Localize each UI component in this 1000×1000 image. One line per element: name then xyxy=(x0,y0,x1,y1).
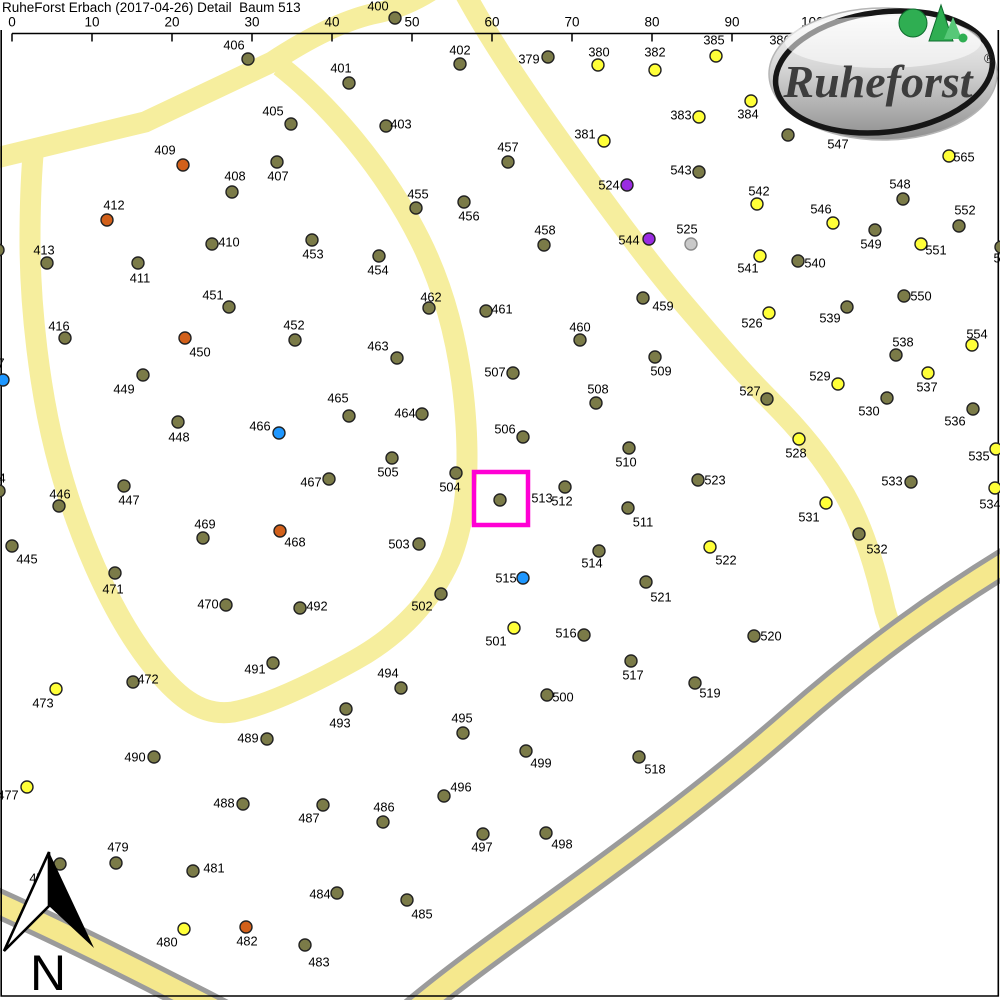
tree-413-label: 413 xyxy=(33,243,54,258)
tree-480-dot[interactable] xyxy=(178,923,190,935)
tree-407-label: 407 xyxy=(267,169,288,184)
tree-457-label: 457 xyxy=(497,140,518,155)
tree-401-dot[interactable] xyxy=(343,77,355,89)
tree-516-dot[interactable] xyxy=(578,629,590,641)
tree-454-dot[interactable] xyxy=(373,250,385,262)
tree-488-label: 488 xyxy=(213,796,234,811)
tree-526-dot[interactable] xyxy=(763,307,775,319)
tree-7-label: 7 xyxy=(0,356,5,371)
tree-467-label: 467 xyxy=(300,475,321,490)
tree-484-label: 484 xyxy=(309,887,330,902)
tree-525-dot[interactable] xyxy=(685,238,697,250)
tree-403-label: 403 xyxy=(390,117,411,132)
scale-label-60: 60 xyxy=(484,15,499,30)
tree-383-dot[interactable] xyxy=(693,111,705,123)
tree-380-dot[interactable] xyxy=(592,59,604,71)
tree-534-dot[interactable] xyxy=(989,482,1000,494)
tree-508-label: 508 xyxy=(587,382,608,397)
tree-464-label: 464 xyxy=(394,406,415,421)
tree-460-label: 460 xyxy=(569,320,590,335)
tree-405-label: 405 xyxy=(262,104,283,119)
tree-512-label: 512 xyxy=(551,494,572,509)
tree-488-dot[interactable] xyxy=(237,798,249,810)
tree-5-label: 5 xyxy=(993,251,1000,266)
tree-467-dot[interactable] xyxy=(323,473,335,485)
tree-481-label: 481 xyxy=(203,861,224,876)
tree-543-label: 543 xyxy=(670,163,691,178)
tree-530-label: 530 xyxy=(858,404,879,419)
tree-382-label: 382 xyxy=(644,45,665,60)
tree-465-label: 465 xyxy=(327,391,348,406)
tree-448-label: 448 xyxy=(168,430,189,445)
tree-382-dot[interactable] xyxy=(649,64,661,76)
tree-456-dot[interactable] xyxy=(458,196,470,208)
tree-531-dot[interactable] xyxy=(820,497,832,509)
north-letter: N xyxy=(30,945,66,1000)
tree-416-label: 416 xyxy=(48,319,69,334)
tree-447-dot[interactable] xyxy=(118,480,130,492)
tree-498-dot[interactable] xyxy=(540,827,552,839)
tree-565-label: 565 xyxy=(953,150,974,165)
tree-485-label: 485 xyxy=(411,907,432,922)
tree-463-dot[interactable] xyxy=(391,352,403,364)
logo-wordmark: Ruheforst xyxy=(782,56,973,107)
tree-477-dot[interactable] xyxy=(21,781,33,793)
tree-446-dot[interactable] xyxy=(53,500,65,512)
tree-487-label: 487 xyxy=(298,811,319,826)
tree-537-dot[interactable] xyxy=(922,367,934,379)
tree-511-label: 511 xyxy=(633,515,653,530)
tree-406-label: 406 xyxy=(223,38,244,53)
tree-459-dot[interactable] xyxy=(637,292,649,304)
scale-label-40: 40 xyxy=(324,15,339,30)
tree-541-label: 541 xyxy=(737,261,758,276)
tree-470-label: 470 xyxy=(197,597,218,612)
tree-500-dot[interactable] xyxy=(541,689,553,701)
tree-516-label: 516 xyxy=(555,626,576,641)
tree-409-label: 409 xyxy=(154,143,175,158)
logo-tree-round-icon xyxy=(899,9,927,37)
tree-510-label: 510 xyxy=(615,455,636,470)
tree-471-dot[interactable] xyxy=(109,567,121,579)
tree-461-label: 461 xyxy=(491,302,512,317)
tree-408-label: 408 xyxy=(224,169,245,184)
tree-483-dot[interactable] xyxy=(299,939,311,951)
tree-384-dot[interactable] xyxy=(745,95,757,107)
tree-512-dot[interactable] xyxy=(559,481,571,493)
tree-472-label: 472 xyxy=(137,672,158,687)
tree-4-label: 4 xyxy=(0,471,6,486)
tree-380-label: 380 xyxy=(588,45,609,60)
map-title: RuheForst Erbach (2017-04-26) Detail Bau… xyxy=(2,0,301,15)
logo-registered-mark: ® xyxy=(984,50,995,66)
tree-379-dot[interactable] xyxy=(542,51,554,63)
tree-511-dot[interactable] xyxy=(622,502,634,514)
tree-509-dot[interactable] xyxy=(649,351,661,363)
tree-538-dot[interactable] xyxy=(890,349,902,361)
scale-label-10: 10 xyxy=(84,15,99,30)
tree-497-label: 497 xyxy=(471,840,492,855)
tree-494-dot[interactable] xyxy=(395,682,407,694)
tree-508-dot[interactable] xyxy=(590,397,602,409)
tree-450-label: 450 xyxy=(189,345,210,360)
tree-385-label: 385 xyxy=(703,33,724,48)
tree-400-label: 400 xyxy=(367,0,388,14)
tree-517-label: 517 xyxy=(622,668,643,683)
tree-550-dot[interactable] xyxy=(898,290,910,302)
tree-457-dot[interactable] xyxy=(502,156,514,168)
tree-460-dot[interactable] xyxy=(574,334,586,346)
tree-520-label: 520 xyxy=(760,629,781,644)
tree-536-label: 536 xyxy=(944,414,965,429)
tree-501-label: 501 xyxy=(485,634,506,649)
tree-535-label: 535 xyxy=(968,449,989,464)
tree-401-label: 401 xyxy=(330,61,351,76)
tree-445-label: 445 xyxy=(16,552,37,567)
tree-491-dot[interactable] xyxy=(267,657,279,669)
tree-535-dot[interactable] xyxy=(990,443,1000,455)
tree-413-dot[interactable] xyxy=(41,257,53,269)
tree-518-label: 518 xyxy=(644,762,665,777)
scale-label-90: 90 xyxy=(724,15,739,30)
tree-507-dot[interactable] xyxy=(507,367,519,379)
tree-490-dot[interactable] xyxy=(148,751,160,763)
tree-515-dot[interactable] xyxy=(517,572,529,584)
tree-483-label: 483 xyxy=(308,955,329,970)
tree-502-label: 502 xyxy=(411,599,432,614)
tree-524-label: 524 xyxy=(598,178,619,193)
tree-466-label: 466 xyxy=(249,419,270,434)
tree-507-label: 507 xyxy=(484,365,505,380)
tree-552-dot[interactable] xyxy=(953,220,965,232)
tree-551-label: 551 xyxy=(925,243,946,258)
tree-521-label: 521 xyxy=(650,590,671,605)
tree-459-label: 459 xyxy=(652,299,673,314)
tree-450-dot[interactable] xyxy=(179,332,191,344)
tree-482-dot[interactable] xyxy=(240,921,252,933)
tree-455-dot[interactable] xyxy=(410,202,422,214)
tree-408-dot[interactable] xyxy=(226,186,238,198)
tree-458-label: 458 xyxy=(534,223,555,238)
tree-454-label: 454 xyxy=(367,263,388,278)
tree-495-label: 495 xyxy=(451,711,472,726)
tree-481-dot[interactable] xyxy=(187,865,199,877)
tree-409-dot[interactable] xyxy=(177,159,189,171)
tree-477-label: 477 xyxy=(0,788,19,803)
scale-label-80: 80 xyxy=(644,15,659,30)
tree-7-dot[interactable] xyxy=(0,374,9,386)
tree-385-dot[interactable] xyxy=(710,50,722,62)
tree-466-dot[interactable] xyxy=(273,427,285,439)
tree-453-dot[interactable] xyxy=(306,234,318,246)
tree-410-label: 410 xyxy=(218,235,239,250)
tree-448-dot[interactable] xyxy=(172,416,184,428)
tree-502-dot[interactable] xyxy=(435,588,447,600)
tree-538-label: 538 xyxy=(892,335,913,350)
tree-501-dot[interactable] xyxy=(508,622,520,634)
tree-451-label: 451 xyxy=(202,288,223,303)
tree-530-dot[interactable] xyxy=(881,392,893,404)
tree-515-label: 515 xyxy=(495,571,516,586)
tree-489-label: 489 xyxy=(237,731,258,746)
tree-416-dot[interactable] xyxy=(59,332,71,344)
tree-464-dot[interactable] xyxy=(416,408,428,420)
tree-453-label: 453 xyxy=(302,247,323,262)
tree-493-dot[interactable] xyxy=(340,703,352,715)
tree-524-dot[interactable] xyxy=(621,179,633,191)
tree-510-dot[interactable] xyxy=(623,442,635,454)
scale-label-0: 0 xyxy=(8,15,16,30)
tree-546-dot[interactable] xyxy=(827,217,839,229)
tree-496-dot[interactable] xyxy=(438,790,450,802)
tree-513-label: 513 xyxy=(531,491,552,506)
tree-465-dot[interactable] xyxy=(343,410,355,422)
tree-509-label: 509 xyxy=(650,364,671,379)
tree-540-label: 540 xyxy=(804,256,825,271)
tree-473-dot[interactable] xyxy=(50,683,62,695)
tree-527-dot[interactable] xyxy=(761,393,773,405)
tree-522-label: 522 xyxy=(715,553,736,568)
tree-513-dot[interactable] xyxy=(494,494,506,506)
tree-493-label: 493 xyxy=(329,716,350,731)
tree-549-label: 549 xyxy=(860,237,881,252)
tree-455-label: 455 xyxy=(407,187,428,202)
tree-383-label: 383 xyxy=(670,108,691,123)
tree-447-label: 447 xyxy=(118,493,139,508)
tree-462-label: 462 xyxy=(420,290,441,305)
tree-523-label: 523 xyxy=(704,473,725,488)
tree-499-label: 499 xyxy=(530,756,551,771)
tree-532-dot[interactable] xyxy=(853,528,865,540)
tree-529-dot[interactable] xyxy=(832,378,844,390)
road-top-left xyxy=(0,0,435,160)
tree-544-label: 544 xyxy=(618,233,639,248)
tree-548-dot[interactable] xyxy=(897,193,909,205)
map-window: RuheForst Erbach (2017-04-26) Detail Bau… xyxy=(0,0,1000,1000)
tree-498-label: 498 xyxy=(551,837,572,852)
tree-544-dot[interactable] xyxy=(643,233,655,245)
tree-489-dot[interactable] xyxy=(261,733,273,745)
tree-469-dot[interactable] xyxy=(197,532,209,544)
scale-label-70: 70 xyxy=(564,15,579,30)
tree-505-label: 505 xyxy=(377,465,398,480)
tree-449-dot[interactable] xyxy=(137,369,149,381)
tree-449-label: 449 xyxy=(113,382,134,397)
tree-550-label: 550 xyxy=(910,289,931,304)
tree-446-label: 446 xyxy=(49,487,70,502)
tree-461-dot[interactable] xyxy=(480,305,492,317)
tree-384-label: 384 xyxy=(737,107,758,122)
tree-536-dot[interactable] xyxy=(967,403,979,415)
tree-402-label: 402 xyxy=(449,43,470,58)
tree-528-dot[interactable] xyxy=(793,433,805,445)
tree-503-dot[interactable] xyxy=(413,538,425,550)
tree-381-label: 381 xyxy=(574,127,595,142)
tree-468-label: 468 xyxy=(284,535,305,550)
tree-456-label: 456 xyxy=(458,209,479,224)
tree-410-dot[interactable] xyxy=(206,238,218,250)
tree-445-dot[interactable] xyxy=(6,540,18,552)
tree-547-dot[interactable] xyxy=(782,129,794,141)
tree-412-label: 412 xyxy=(103,198,124,213)
tree-411-label: 411 xyxy=(130,271,150,286)
tree-546-label: 546 xyxy=(810,202,831,217)
tree-540-dot[interactable] xyxy=(792,255,804,267)
tree-519-label: 519 xyxy=(699,686,720,701)
tree-486-label: 486 xyxy=(373,800,394,815)
tree-520-dot[interactable] xyxy=(748,630,760,642)
tree-edge-dot[interactable] xyxy=(0,244,4,256)
tree-452-label: 452 xyxy=(283,318,304,333)
tree-473-label: 473 xyxy=(32,696,53,711)
tree-497-dot[interactable] xyxy=(477,828,489,840)
road-loop xyxy=(30,66,467,713)
tree-496-label: 496 xyxy=(450,780,471,795)
tree-458-dot[interactable] xyxy=(538,239,550,251)
tree-506-dot[interactable] xyxy=(517,431,529,443)
tree-504-dot[interactable] xyxy=(450,467,462,479)
tree-484-dot[interactable] xyxy=(331,887,343,899)
tree-549-dot[interactable] xyxy=(869,224,881,236)
tree-491-label: 491 xyxy=(244,662,265,677)
tree-542-dot[interactable] xyxy=(751,198,763,210)
tree-412-dot[interactable] xyxy=(101,214,113,226)
tree-505-dot[interactable] xyxy=(386,452,398,464)
tree-4-dot[interactable] xyxy=(0,485,5,497)
tree-548-label: 548 xyxy=(889,177,910,192)
tree-470-dot[interactable] xyxy=(220,599,232,611)
tree-517-dot[interactable] xyxy=(625,655,637,667)
tree-407-dot[interactable] xyxy=(271,156,283,168)
tree-547-label: 547 xyxy=(827,137,848,152)
tree-542-label: 542 xyxy=(748,184,769,199)
tree-485-dot[interactable] xyxy=(401,894,413,906)
tree-482-label: 482 xyxy=(236,934,257,949)
tree-469-label: 469 xyxy=(194,517,215,532)
tree-492-dot[interactable] xyxy=(294,602,306,614)
tree-379-label: 379 xyxy=(518,52,539,67)
tree-518-dot[interactable] xyxy=(633,751,645,763)
tree-504-label: 504 xyxy=(439,480,460,495)
tree-480-label: 480 xyxy=(156,935,177,950)
tree-525-label: 525 xyxy=(676,222,697,237)
scale-label-50: 50 xyxy=(404,15,419,30)
tree-381-dot[interactable] xyxy=(598,135,610,147)
tree-532-label: 532 xyxy=(866,542,887,557)
tree-406-dot[interactable] xyxy=(242,53,254,65)
logo-tree-dot-icon xyxy=(959,34,968,43)
tree-405-dot[interactable] xyxy=(285,118,297,130)
tree-411-dot[interactable] xyxy=(132,257,144,269)
tree-527-label: 527 xyxy=(739,384,760,399)
tree-471-label: 471 xyxy=(102,582,123,597)
tree-514-label: 514 xyxy=(581,556,602,571)
forest-map-canvas[interactable]: 3793803813823833843853864004014024034054… xyxy=(0,0,1000,1000)
tree-463-label: 463 xyxy=(367,339,388,354)
tree-552-label: 552 xyxy=(954,203,975,218)
tree-451-dot[interactable] xyxy=(223,301,235,313)
tree-506-label: 506 xyxy=(494,422,515,437)
tree-526-label: 526 xyxy=(741,316,762,331)
tree-402-dot[interactable] xyxy=(454,58,466,70)
tree-400-dot[interactable] xyxy=(389,12,401,24)
tree-494-label: 494 xyxy=(377,666,398,681)
tree-539-label: 539 xyxy=(819,311,840,326)
tree-529-label: 529 xyxy=(809,369,830,384)
scale-label-20: 20 xyxy=(164,15,179,30)
tree-534-label: 534 xyxy=(979,497,1000,512)
tree-528-label: 528 xyxy=(785,446,806,461)
tree-479-dot[interactable] xyxy=(110,857,122,869)
tree-521-dot[interactable] xyxy=(640,576,652,588)
tree-539-dot[interactable] xyxy=(841,301,853,313)
tree-492-label: 492 xyxy=(306,599,327,614)
tree-543-dot[interactable] xyxy=(693,166,705,178)
tree-533-label: 533 xyxy=(881,474,902,489)
tree-531-label: 531 xyxy=(798,510,819,525)
tree-486-dot[interactable] xyxy=(377,816,389,828)
tree-495-dot[interactable] xyxy=(457,727,469,739)
tree-503-label: 503 xyxy=(388,537,409,552)
tree-522-dot[interactable] xyxy=(704,541,716,553)
tree-500-label: 500 xyxy=(552,690,573,705)
tree-452-dot[interactable] xyxy=(289,334,301,346)
tree-490-label: 490 xyxy=(124,750,145,765)
tree-487-dot[interactable] xyxy=(317,799,329,811)
scale-label-30: 30 xyxy=(244,15,259,30)
tree-479-label: 479 xyxy=(107,840,128,855)
tree-533-dot[interactable] xyxy=(905,476,917,488)
tree-554-label: 554 xyxy=(966,327,987,342)
tree-523-dot[interactable] xyxy=(692,474,704,486)
tree-537-label: 537 xyxy=(916,380,937,395)
